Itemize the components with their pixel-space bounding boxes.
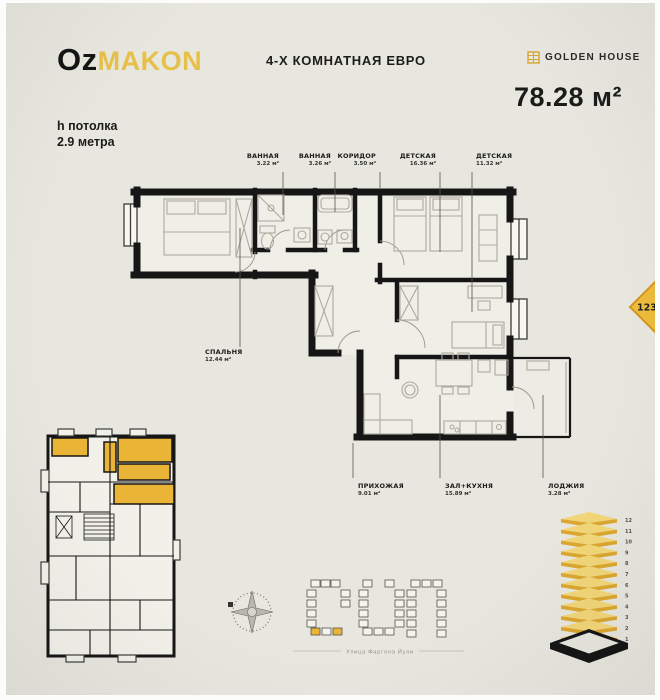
mini-floor-plan bbox=[41, 429, 180, 662]
plan-canvas: ВАННАЯ 3.22 м² ВАННАЯ 3.26 м² КОРИДОР 3.… bbox=[0, 0, 660, 700]
floor-number: 6 bbox=[625, 583, 629, 589]
room-area: 3.28 м² bbox=[548, 490, 571, 497]
room-area: 15.89 м² bbox=[445, 490, 472, 497]
room-area: 9.01 м² bbox=[358, 490, 381, 497]
site-highlight-block bbox=[311, 628, 320, 635]
unit-badge-number: 123 bbox=[637, 303, 657, 314]
compass bbox=[228, 591, 273, 633]
room-label: КОРИДОР bbox=[337, 152, 376, 160]
room-area: 16.36 м² bbox=[410, 160, 437, 167]
compass-marker bbox=[228, 602, 233, 607]
room-label: ВАННАЯ bbox=[299, 152, 331, 160]
street-name: Улица Фаргона Йули bbox=[346, 649, 414, 656]
room-area: 12.44 м² bbox=[205, 356, 232, 363]
edge-right bbox=[655, 0, 660, 700]
room-area: 3.50 м² bbox=[354, 160, 377, 167]
floor-stack-base bbox=[550, 629, 628, 663]
floor-number: 11 bbox=[625, 529, 632, 535]
site-highlight-block bbox=[333, 628, 342, 635]
room-label: ДЕТСКАЯ bbox=[400, 152, 436, 160]
floor-number: 2 bbox=[625, 626, 629, 632]
room-area: 11.32 м² bbox=[476, 160, 503, 167]
street: Улица Фаргона Йули bbox=[293, 649, 464, 656]
floor-number: 3 bbox=[625, 615, 629, 621]
room-label: ЛОДЖИЯ bbox=[548, 482, 584, 490]
room-area: 3.22 м² bbox=[257, 160, 280, 167]
floor-number: 8 bbox=[625, 561, 629, 567]
floor-number: 10 bbox=[625, 540, 632, 546]
main-floor-plan: ВАННАЯ 3.22 м² ВАННАЯ 3.26 м² КОРИДОР 3.… bbox=[124, 152, 584, 497]
floor-number: 7 bbox=[625, 572, 629, 578]
room-label: ДЕТСКАЯ bbox=[476, 152, 512, 160]
edge-bottom bbox=[0, 695, 660, 700]
room-label: ПРИХОЖАЯ bbox=[358, 482, 404, 490]
floor-number: 12 bbox=[625, 518, 632, 524]
floor-number: 9 bbox=[625, 550, 629, 556]
room-area: 3.26 м² bbox=[309, 160, 332, 167]
floor-stack: 121110987654321 bbox=[561, 512, 632, 646]
room-label: ЗАЛ+КУХНЯ bbox=[445, 482, 493, 490]
edge-left bbox=[0, 0, 6, 700]
edge-top bbox=[0, 0, 660, 3]
floor-number: 1 bbox=[625, 637, 629, 643]
floor-number: 5 bbox=[625, 594, 629, 600]
room-label: ВАННАЯ bbox=[247, 152, 279, 160]
site-plan bbox=[307, 580, 446, 637]
floor-number: 4 bbox=[625, 604, 629, 610]
room-label: СПАЛЬНЯ bbox=[205, 348, 242, 356]
